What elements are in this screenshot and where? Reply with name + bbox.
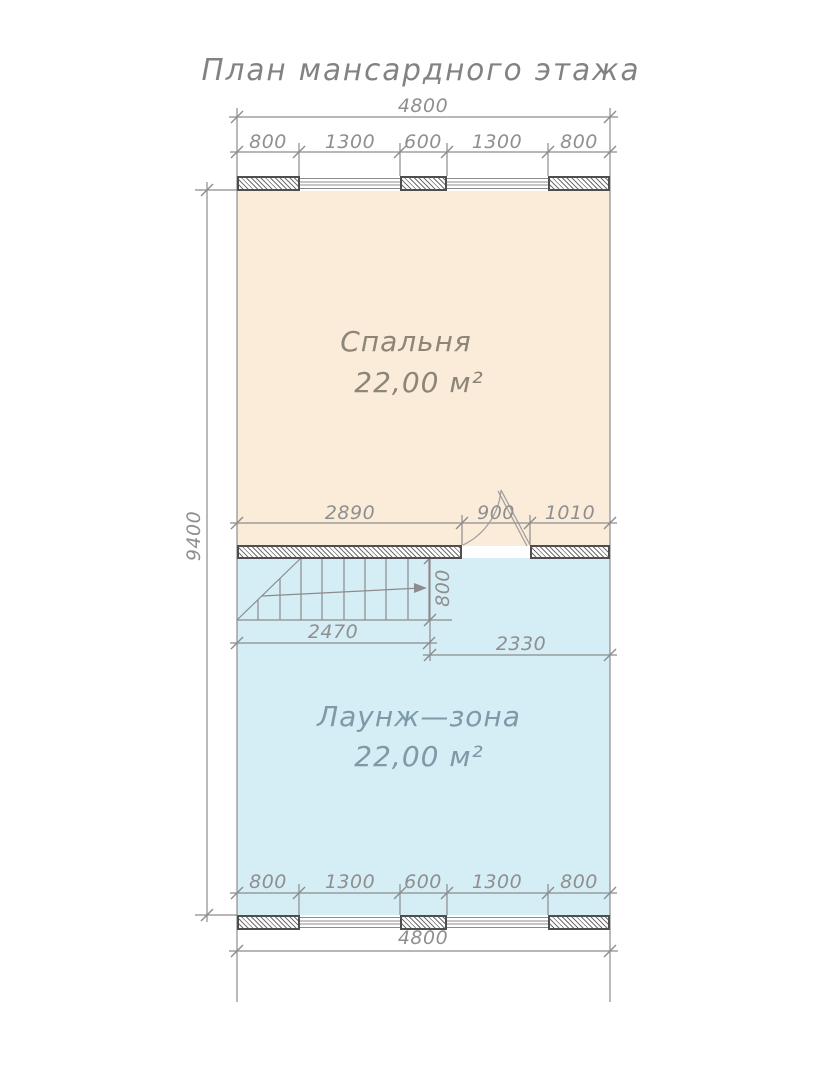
wall-segment <box>400 176 447 191</box>
dim-stairs-width: 2470 <box>308 621 358 643</box>
dim-left-overall: 9400 <box>183 511 205 561</box>
window <box>300 176 400 191</box>
window <box>447 176 548 191</box>
page-title: План мансардного этажа <box>202 53 641 88</box>
dim-bottom-seg-3: 1300 <box>472 871 522 893</box>
wall-segment <box>548 915 610 930</box>
bedroom-name: Спальня <box>340 325 472 358</box>
dim-top-seg-1: 1300 <box>325 131 375 153</box>
dim-bottom-seg-2: 600 <box>404 871 442 893</box>
dim-top-seg-0: 800 <box>249 131 287 153</box>
interior-wall-left <box>237 545 462 559</box>
stairs-treads <box>258 558 408 620</box>
dim-landing: 2330 <box>496 633 546 655</box>
wall-segment <box>548 176 610 191</box>
wall-segment <box>237 915 300 930</box>
dim-bottom-seg-1: 1300 <box>325 871 375 893</box>
window <box>300 915 400 930</box>
dim-bottom-seg-4: 800 <box>560 871 598 893</box>
dim-interior-2: 1010 <box>545 502 595 524</box>
window <box>447 915 548 930</box>
stairs-arrow-head <box>414 583 427 593</box>
stairs-arrow-line <box>262 588 421 596</box>
floor-plan: План мансардного этажа 4800 800 1300 600… <box>0 0 826 1067</box>
bedroom-area-label: 22,00 м² <box>354 366 483 399</box>
lounge-name: Лаунж—зона <box>317 700 521 733</box>
dim-interior-0: 2890 <box>325 502 375 524</box>
stairs-break-line <box>237 558 301 620</box>
plan-linework <box>0 0 826 1067</box>
dim-top-seg-3: 1300 <box>472 131 522 153</box>
interior-wall-right <box>530 545 610 559</box>
dim-top-seg-4: 800 <box>560 131 598 153</box>
dim-stairs-depth: 800 <box>432 569 454 607</box>
dim-top-overall: 4800 <box>398 95 448 117</box>
dim-bottom-seg-0: 800 <box>249 871 287 893</box>
dim-bottom-overall: 4800 <box>398 927 448 949</box>
dimension-ticks <box>201 111 616 957</box>
dim-top-seg-2: 600 <box>404 131 442 153</box>
dim-interior-1: 900 <box>477 502 515 524</box>
wall-segment <box>237 176 300 191</box>
lounge-area-label: 22,00 м² <box>354 740 483 773</box>
